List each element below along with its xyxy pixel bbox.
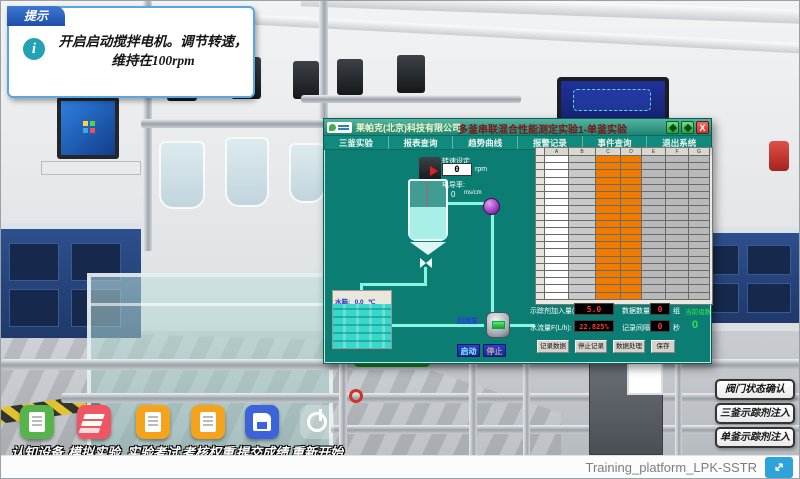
table-cell (642, 264, 666, 271)
table-cell (545, 264, 569, 271)
close-button[interactable]: X (696, 121, 709, 134)
table-cell (689, 264, 710, 271)
speed-unit: rpm (475, 166, 487, 173)
table-cell (621, 163, 642, 170)
table-cell (545, 163, 569, 170)
table-cell (569, 228, 596, 235)
reflux-pump-label: 回流泵 (457, 316, 478, 326)
table-cell (642, 170, 666, 177)
table-column-header: A (545, 148, 569, 156)
table-cell (621, 199, 642, 206)
table-cell (689, 178, 710, 185)
speed-input[interactable] (442, 163, 472, 176)
table-cell (621, 264, 642, 271)
table-cell (569, 249, 596, 256)
table-cell (642, 293, 666, 300)
table-cell (666, 242, 689, 249)
table-row (536, 278, 712, 285)
table-cell (569, 293, 596, 300)
table-cell (596, 249, 621, 256)
table-cell (569, 271, 596, 278)
table-cell (621, 257, 642, 264)
table-cell (545, 206, 569, 213)
left-monitor (57, 97, 119, 159)
table-column-header: G (689, 148, 710, 156)
table-cell (596, 221, 621, 228)
table-row (536, 235, 712, 242)
conductivity-value: 0 (451, 190, 455, 199)
table-row (536, 185, 712, 192)
table-row (536, 178, 712, 185)
table-cell (642, 199, 666, 206)
rig-post (319, 1, 328, 121)
table-cell (545, 214, 569, 221)
platform-name: Training_platform_LPK-SSTR (586, 460, 757, 475)
power-icon (300, 405, 334, 439)
table-cell (545, 271, 569, 278)
table-cell (689, 199, 710, 206)
restore-button[interactable] (666, 121, 679, 134)
fire-extinguisher (769, 141, 789, 171)
table-cell (621, 185, 642, 192)
table-cell (545, 178, 569, 185)
valve-status-confirm-button[interactable]: 阀门状态确认 (715, 379, 795, 400)
table-cell (596, 278, 621, 285)
pipe (491, 202, 494, 314)
table-cell (666, 257, 689, 264)
table-cell (642, 257, 666, 264)
table-cell (621, 293, 642, 300)
current-group-label: 当前组数 (685, 306, 711, 316)
table-cell (666, 206, 689, 213)
table-cell (621, 206, 642, 213)
single-kettle-tracer-button[interactable]: 单釜示踪剂注入 (715, 427, 795, 448)
table-cell (642, 221, 666, 228)
table-row (536, 285, 712, 292)
table-row (536, 163, 712, 170)
rig-rail (301, 95, 521, 103)
training-simulator-screen: 提示 i 开启启动搅拌电机。调节转速， 维持在100rpm 莱帕克(北京)科技有… (0, 0, 800, 479)
three-kettle-tracer-button[interactable]: 三釜示踪剂注入 (715, 403, 795, 424)
table-cell (689, 285, 710, 292)
table-cell (569, 192, 596, 199)
current-group-value: 0 (692, 319, 698, 331)
table-cell (642, 178, 666, 185)
table-cell (596, 293, 621, 300)
table-cell (545, 192, 569, 199)
table-cell (689, 185, 710, 192)
table-cell (596, 178, 621, 185)
table-cell (545, 235, 569, 242)
menu-item-report-query[interactable]: 报表查询 (389, 136, 454, 149)
table-cell (621, 285, 642, 292)
table-cell (666, 221, 689, 228)
toolbar-item-restart[interactable]: 重新开始 (285, 405, 349, 461)
table-cell (596, 199, 621, 206)
expand-icon: ↔ (768, 456, 791, 479)
table-cell (569, 170, 596, 177)
table-cell (545, 199, 569, 206)
glass-reactor (159, 141, 205, 209)
table-cell (569, 221, 596, 228)
window-title: 多釜串联混合性能测定实验1-单釜实验 (434, 121, 651, 136)
info-icon: i (23, 38, 45, 60)
parameter-panel: 示踪剂加入量(mol): 5.0 数据数量: 0 组 当前组数 水流量F(L/h… (528, 302, 713, 365)
stirrer-motor (293, 61, 319, 99)
table-cell (621, 192, 642, 199)
table-row (536, 156, 712, 163)
table-cell (642, 228, 666, 235)
table-cell (666, 192, 689, 199)
left-desk (41, 161, 141, 175)
toolbar-item-device[interactable]: 认知设备 (5, 405, 69, 461)
table-cell (596, 163, 621, 170)
record-interval-label: 记录间隔: (622, 323, 652, 333)
title-bar[interactable]: 莱帕克(北京)科技有限公司 多釜串联混合性能测定实验1-单釜实验 X (324, 119, 711, 136)
table-row (536, 206, 712, 213)
table-column-header: E (642, 148, 666, 156)
table-cell (666, 185, 689, 192)
table-cell (596, 257, 621, 264)
fullscreen-button[interactable]: ↔ (765, 457, 793, 478)
windows-logo-icon (83, 121, 88, 126)
table-cell (569, 264, 596, 271)
table-cell (666, 285, 689, 292)
save-button[interactable]: 保存 (651, 340, 675, 353)
table-cell (666, 199, 689, 206)
exam-document-icon (136, 405, 170, 439)
process-diagram: 转速设定 rpm 电导率: 0 ms/cm 水箱: 0.0 ℃ 回流泵 (324, 150, 535, 365)
table-cell (596, 192, 621, 199)
table-cell (545, 278, 569, 285)
table-cell (621, 278, 642, 285)
water-flow-label: 水流量F(L/h): (530, 323, 572, 333)
table-cell (642, 278, 666, 285)
table-row (536, 257, 712, 264)
stirrer-motor (397, 55, 425, 93)
table-cell (689, 293, 710, 300)
table-cell (596, 264, 621, 271)
report-table[interactable]: ABCDEFG (535, 147, 713, 305)
table-cell (689, 192, 710, 199)
table-cell (689, 257, 710, 264)
table-cell (689, 156, 710, 163)
record-interval-value: 0 (650, 320, 670, 332)
table-cell (642, 163, 666, 170)
table-row (536, 214, 712, 221)
reflux-pump-icon[interactable] (486, 312, 510, 338)
scada-window: 莱帕克(北京)科技有限公司 多釜串联混合性能测定实验1-单釜实验 X 三釜实验 … (323, 118, 712, 364)
table-cell (689, 221, 710, 228)
table-cell (569, 178, 596, 185)
table-column-header: C (596, 148, 621, 156)
table-cell (689, 163, 710, 170)
stirrer-motor (337, 59, 363, 95)
table-cell (642, 156, 666, 163)
metering-pump-icon[interactable] (483, 198, 500, 215)
table-cell (666, 228, 689, 235)
table-cell (621, 271, 642, 278)
maximize-button[interactable] (681, 121, 694, 134)
table-cell (596, 156, 621, 163)
weight-document-icon (191, 405, 225, 439)
table-cell (596, 271, 621, 278)
table-cell (642, 235, 666, 242)
table-column-header: D (621, 148, 642, 156)
table-cell (689, 249, 710, 256)
hint-text: 开启启动搅拌电机。调节转速， 维持在100rpm (55, 32, 251, 70)
table-cell (569, 242, 596, 249)
bench-rail (61, 393, 800, 403)
glass-reactor (289, 143, 325, 203)
table-cell (621, 214, 642, 221)
table-cell (666, 293, 689, 300)
table-cell (545, 156, 569, 163)
save-disk-icon (245, 405, 279, 439)
table-cell (666, 178, 689, 185)
table-cell (569, 185, 596, 192)
table-cell (689, 235, 710, 242)
table-cell (666, 156, 689, 163)
table-cell (596, 228, 621, 235)
table-cell (569, 235, 596, 242)
table-row (536, 228, 712, 235)
glass-reactor (225, 137, 269, 207)
table-cell (689, 170, 710, 177)
table-row (536, 249, 712, 256)
table-cell (596, 185, 621, 192)
pump-stop-button[interactable]: 停止 (483, 344, 506, 357)
table-cell (642, 249, 666, 256)
table-row (536, 242, 712, 249)
table-cell (621, 249, 642, 256)
table-row (536, 192, 712, 199)
table-cell (666, 163, 689, 170)
table-row (536, 264, 712, 271)
table-row (536, 293, 712, 300)
reactor-cone (410, 242, 446, 255)
menu-item-trend-curve[interactable]: 趋势曲线 (453, 136, 518, 149)
table-cell (642, 192, 666, 199)
table-cell (621, 221, 642, 228)
table-cell (642, 185, 666, 192)
table-column-header: B (569, 148, 596, 156)
table-cell (545, 185, 569, 192)
table-cell (569, 163, 596, 170)
table-cell (569, 199, 596, 206)
footer-bar: Training_platform_LPK-SSTR ↔ (1, 455, 800, 478)
table-cell (689, 214, 710, 221)
record-data-button[interactable]: 记录数据 (537, 340, 569, 353)
stop-record-button[interactable]: 停止记录 (575, 340, 607, 353)
toolbar-item-simulation[interactable]: 模拟实验 (62, 405, 126, 461)
reactor-liquid (410, 207, 446, 239)
table-cell (545, 228, 569, 235)
table-cell (569, 214, 596, 221)
table-cell (666, 271, 689, 278)
conductivity-label: 电导率: (442, 180, 465, 190)
table-cell (545, 242, 569, 249)
menu-item-three-kettle[interactable]: 三釜实验 (324, 136, 389, 149)
pipe (360, 283, 427, 286)
record-interval-unit: 秒 (673, 323, 680, 333)
table-cell (689, 228, 710, 235)
table-cell (621, 235, 642, 242)
table-cell (642, 242, 666, 249)
table-cell (666, 249, 689, 256)
table-cell (621, 170, 642, 177)
hint-tab: 提示 (7, 6, 65, 26)
table-column-header: F (666, 148, 689, 156)
table-cell (596, 285, 621, 292)
table-cell (545, 285, 569, 292)
table-row (536, 199, 712, 206)
table-cell (666, 214, 689, 221)
red-valve-wheel-icon (349, 389, 363, 403)
table-cell (666, 264, 689, 271)
table-cell (666, 170, 689, 177)
hint-box: 提示 i 开启启动搅拌电机。调节转速， 维持在100rpm (7, 6, 255, 98)
table-cell (689, 206, 710, 213)
tracer-amount-value: 5.0 (574, 303, 614, 315)
table-cell (621, 178, 642, 185)
table-cell (545, 221, 569, 228)
device-document-icon (20, 405, 54, 439)
table-row (536, 221, 712, 228)
table-cell (642, 206, 666, 213)
table-cell (621, 242, 642, 249)
data-count-value: 0 (650, 303, 670, 315)
process-data-button[interactable]: 数据处理 (613, 340, 645, 353)
table-cell (642, 271, 666, 278)
table-cell (642, 214, 666, 221)
table-cell (689, 278, 710, 285)
table-cell (596, 242, 621, 249)
table-cell (689, 271, 710, 278)
table-cell (569, 206, 596, 213)
conductivity-unit: ms/cm (464, 190, 482, 196)
table-cell (596, 214, 621, 221)
table-cell (666, 235, 689, 242)
table-cell (545, 293, 569, 300)
company-logo-icon (327, 122, 352, 133)
table-cell (545, 249, 569, 256)
layers-icon (77, 405, 111, 439)
table-row (536, 170, 712, 177)
table-cell (666, 278, 689, 285)
table-row (536, 271, 712, 278)
table-cell (596, 170, 621, 177)
table-cell (689, 242, 710, 249)
water-tank: 水箱: 0.0 ℃ (332, 290, 392, 349)
water-flow-value: 22.825% (574, 320, 614, 332)
table-cell (569, 257, 596, 264)
drain-valve-icon (426, 258, 432, 268)
table-cell (596, 235, 621, 242)
table-cell (569, 285, 596, 292)
table-cell (545, 257, 569, 264)
table-cell (621, 156, 642, 163)
data-count-unit: 组 (673, 306, 680, 316)
table-cell (569, 156, 596, 163)
table-cell (545, 170, 569, 177)
data-count-label: 数据数量: (622, 306, 652, 316)
pump-start-button[interactable]: 启动 (457, 344, 480, 357)
table-cell (596, 206, 621, 213)
pointer-arrow-icon (430, 166, 438, 176)
table-cell (621, 228, 642, 235)
table-cell (569, 278, 596, 285)
table-cell (642, 285, 666, 292)
